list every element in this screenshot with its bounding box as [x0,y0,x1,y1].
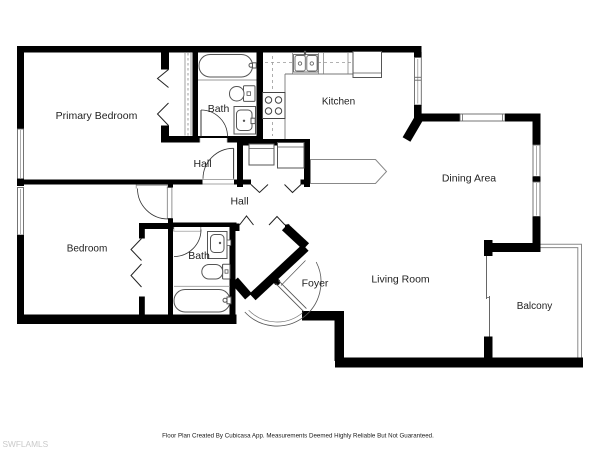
svg-text:Hall: Hall [230,196,248,208]
svg-text:Balcony: Balcony [517,301,553,312]
svg-text:Floor Plan Created By Cubicasa: Floor Plan Created By Cubicasa App. Meas… [162,433,434,440]
svg-text:Kitchen: Kitchen [322,97,355,108]
svg-text:SWFLAMLS: SWFLAMLS [3,439,49,449]
svg-text:Hall: Hall [193,158,211,170]
svg-text:Bath: Bath [188,250,210,262]
svg-text:Dining Area: Dining Area [442,173,496,185]
svg-text:Primary Bedroom: Primary Bedroom [56,110,138,122]
svg-text:Bedroom: Bedroom [67,244,108,255]
svg-text:Living Room: Living Room [371,274,430,286]
svg-text:Bath: Bath [208,103,230,115]
svg-text:Foyer: Foyer [302,278,329,290]
